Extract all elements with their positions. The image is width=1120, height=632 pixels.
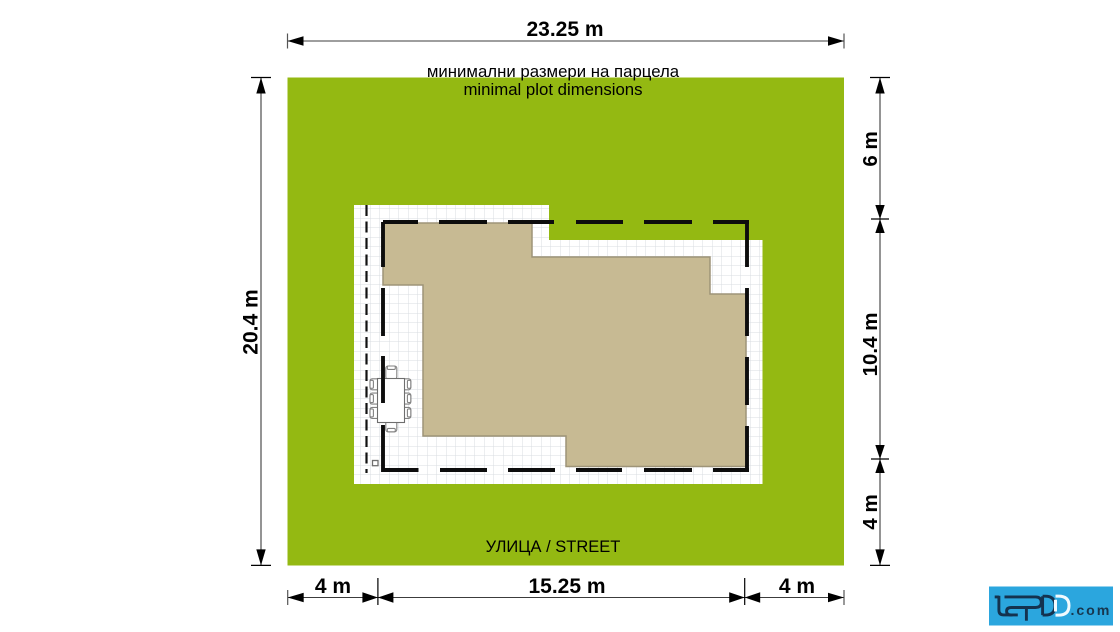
- svg-text:4 m: 4 m: [779, 575, 815, 598]
- svg-text:4 m: 4 m: [315, 575, 351, 598]
- svg-text:минимални размери на парцела: минимални размери на парцела: [427, 62, 680, 81]
- svg-text:minimal plot dimensions: minimal plot dimensions: [463, 80, 642, 99]
- svg-text:23.25 m: 23.25 m: [526, 18, 603, 41]
- svg-text:15.25 m: 15.25 m: [528, 575, 605, 598]
- svg-text:6 m: 6 m: [859, 131, 882, 166]
- svg-text:.com: .com: [1071, 603, 1112, 619]
- svg-text:УЛИЦА / STREET: УЛИЦА / STREET: [486, 538, 621, 556]
- svg-text:4 m: 4 m: [859, 494, 882, 529]
- svg-text:10.4 m: 10.4 m: [859, 313, 882, 377]
- svg-text:20.4 m: 20.4 m: [240, 289, 263, 354]
